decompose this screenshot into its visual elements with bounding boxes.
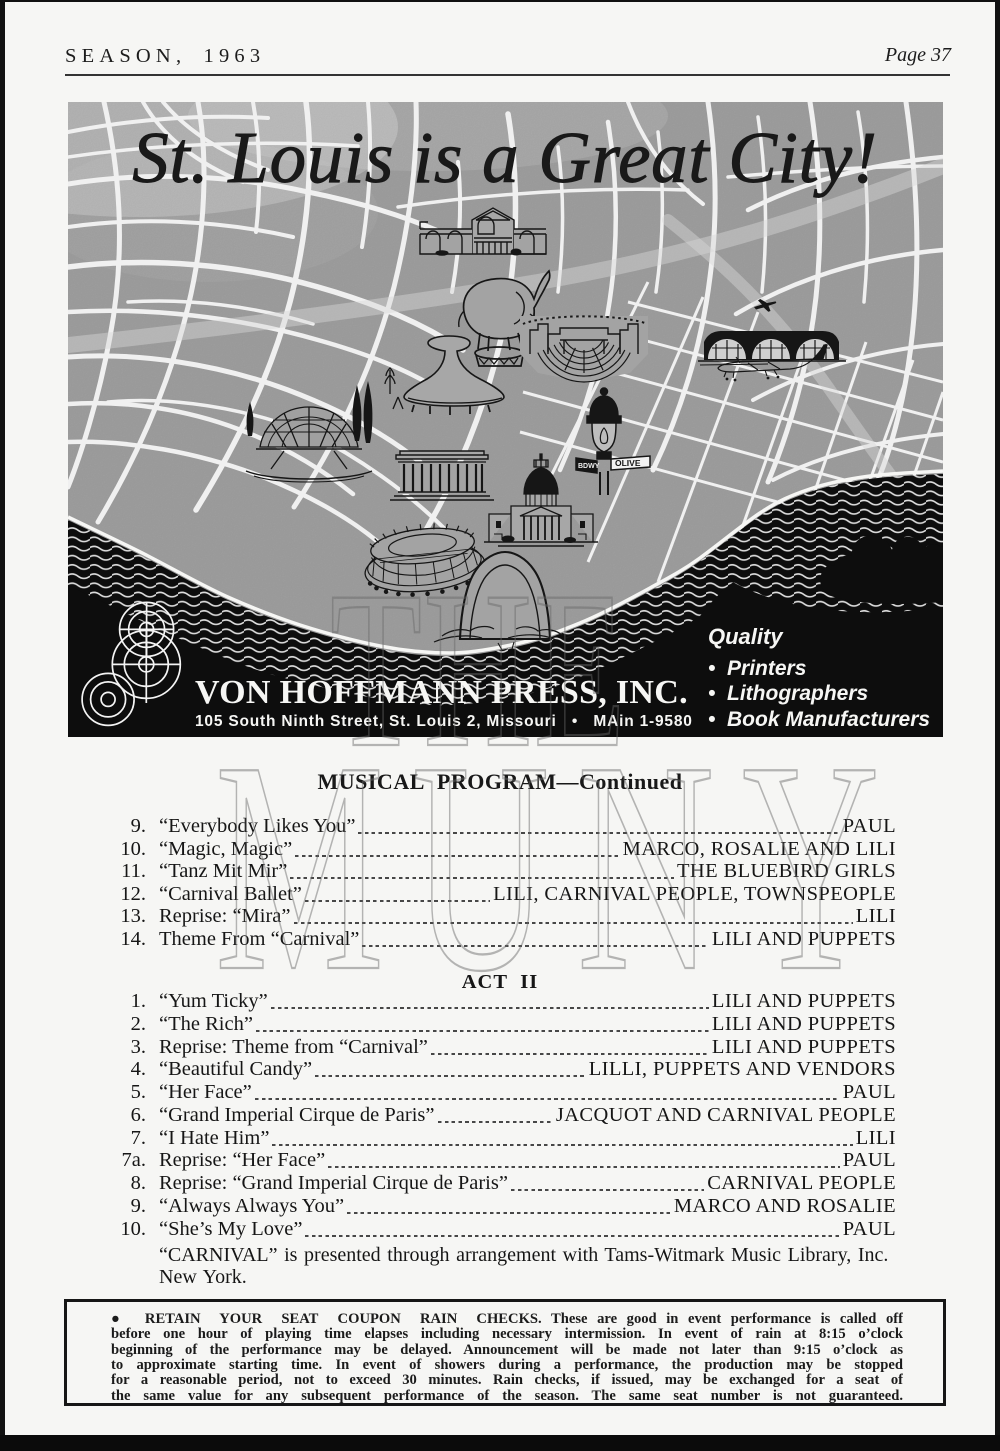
svg-text:St. Louis is a Great City!: St. Louis is a Great City!	[132, 117, 878, 198]
svg-text:• Book Manufacturers: • Book Manufacturers	[708, 708, 930, 731]
svg-text:VON HOFFMANN PRESS, INC.: VON HOFFMANN PRESS, INC.	[195, 674, 688, 711]
svg-text:105 South Ninth Street, St. Lo: 105 South Ninth Street, St. Louis 2, Mis…	[195, 713, 693, 730]
svg-text:OLIVE: OLIVE	[615, 458, 641, 468]
svg-text:• Lithographers: • Lithographers	[708, 682, 868, 705]
svg-text:BDWY: BDWY	[578, 463, 600, 470]
svg-text:Quality: Quality	[708, 624, 784, 649]
svg-text:• Printers: • Printers	[708, 657, 806, 680]
